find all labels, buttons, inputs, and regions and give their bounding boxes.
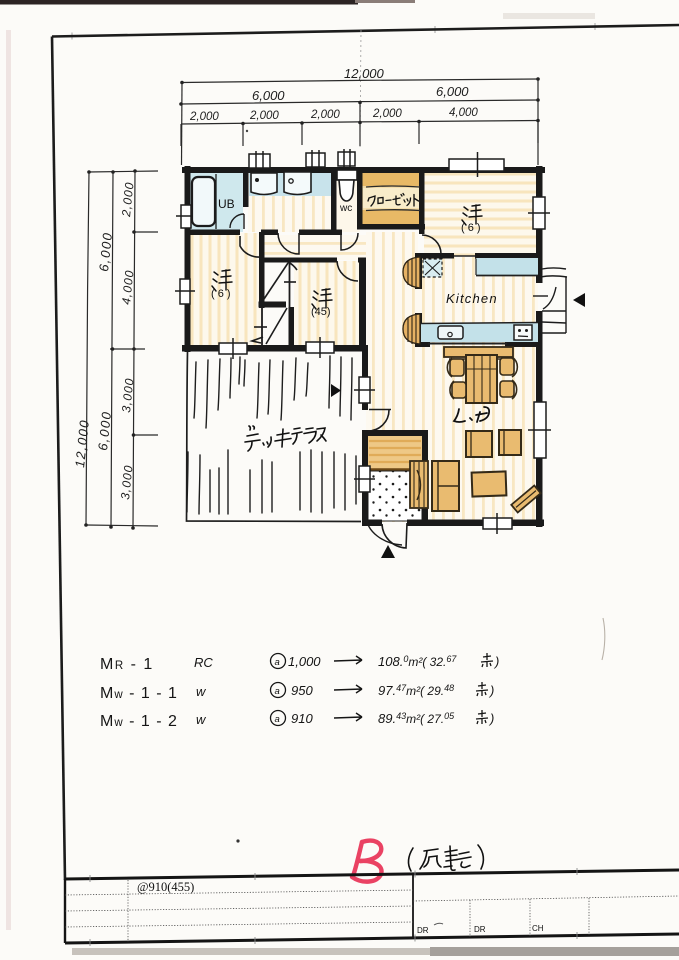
svg-text:a: a [275,714,280,725]
svg-text:6,000: 6,000 [436,84,469,99]
svg-text:): ) [488,683,494,698]
svg-text:DR: DR [417,926,429,935]
svg-text:2,000: 2,000 [310,109,340,121]
svg-text:2,000: 2,000 [372,108,402,120]
svg-text:a: a [275,657,280,668]
svg-text:DR: DR [474,925,486,934]
svg-text:Mw - 1 - 2: Mw - 1 - 2 [100,713,178,730]
svg-text:RC: RC [194,655,213,670]
svg-text:Mw - 1 - 1: Mw - 1 - 1 [100,685,178,702]
svg-text:1,000: 1,000 [288,654,321,669]
svg-text:97.47m²( 29.48: 97.47m²( 29.48 [378,683,454,698]
svg-text:): ) [488,711,494,726]
svg-text:UB: UB [218,197,235,211]
svg-text:2,000: 2,000 [119,181,137,218]
svg-text:( 6 ): ( 6 ) [211,288,231,300]
svg-text:Kitchen: Kitchen [446,291,498,306]
svg-text:108.0m²( 32.67: 108.0m²( 32.67 [378,654,457,669]
svg-text:(45): (45) [311,306,331,318]
svg-text:): ) [493,654,499,669]
svg-text:a: a [275,686,280,697]
svg-text:12,000: 12,000 [344,66,385,81]
svg-text:MR - 1: MR - 1 [100,656,154,673]
svg-text:910: 910 [291,711,313,726]
svg-text:w: w [196,712,207,727]
svg-text:2,000: 2,000 [189,111,219,123]
svg-text:6,000: 6,000 [252,88,285,103]
svg-text:@910(455): @910(455) [137,880,194,894]
svg-text:2,000: 2,000 [249,110,279,122]
svg-text:89.43m²( 27.05: 89.43m²( 27.05 [378,711,455,726]
svg-text:wc: wc [339,203,352,214]
svg-text:w: w [196,684,207,699]
svg-text:( 6 ): ( 6 ) [461,222,481,234]
svg-text:12,000: 12,000 [72,418,92,468]
svg-text:4,000: 4,000 [449,107,478,119]
svg-text:950: 950 [291,683,313,698]
svg-text:CH: CH [532,924,544,933]
